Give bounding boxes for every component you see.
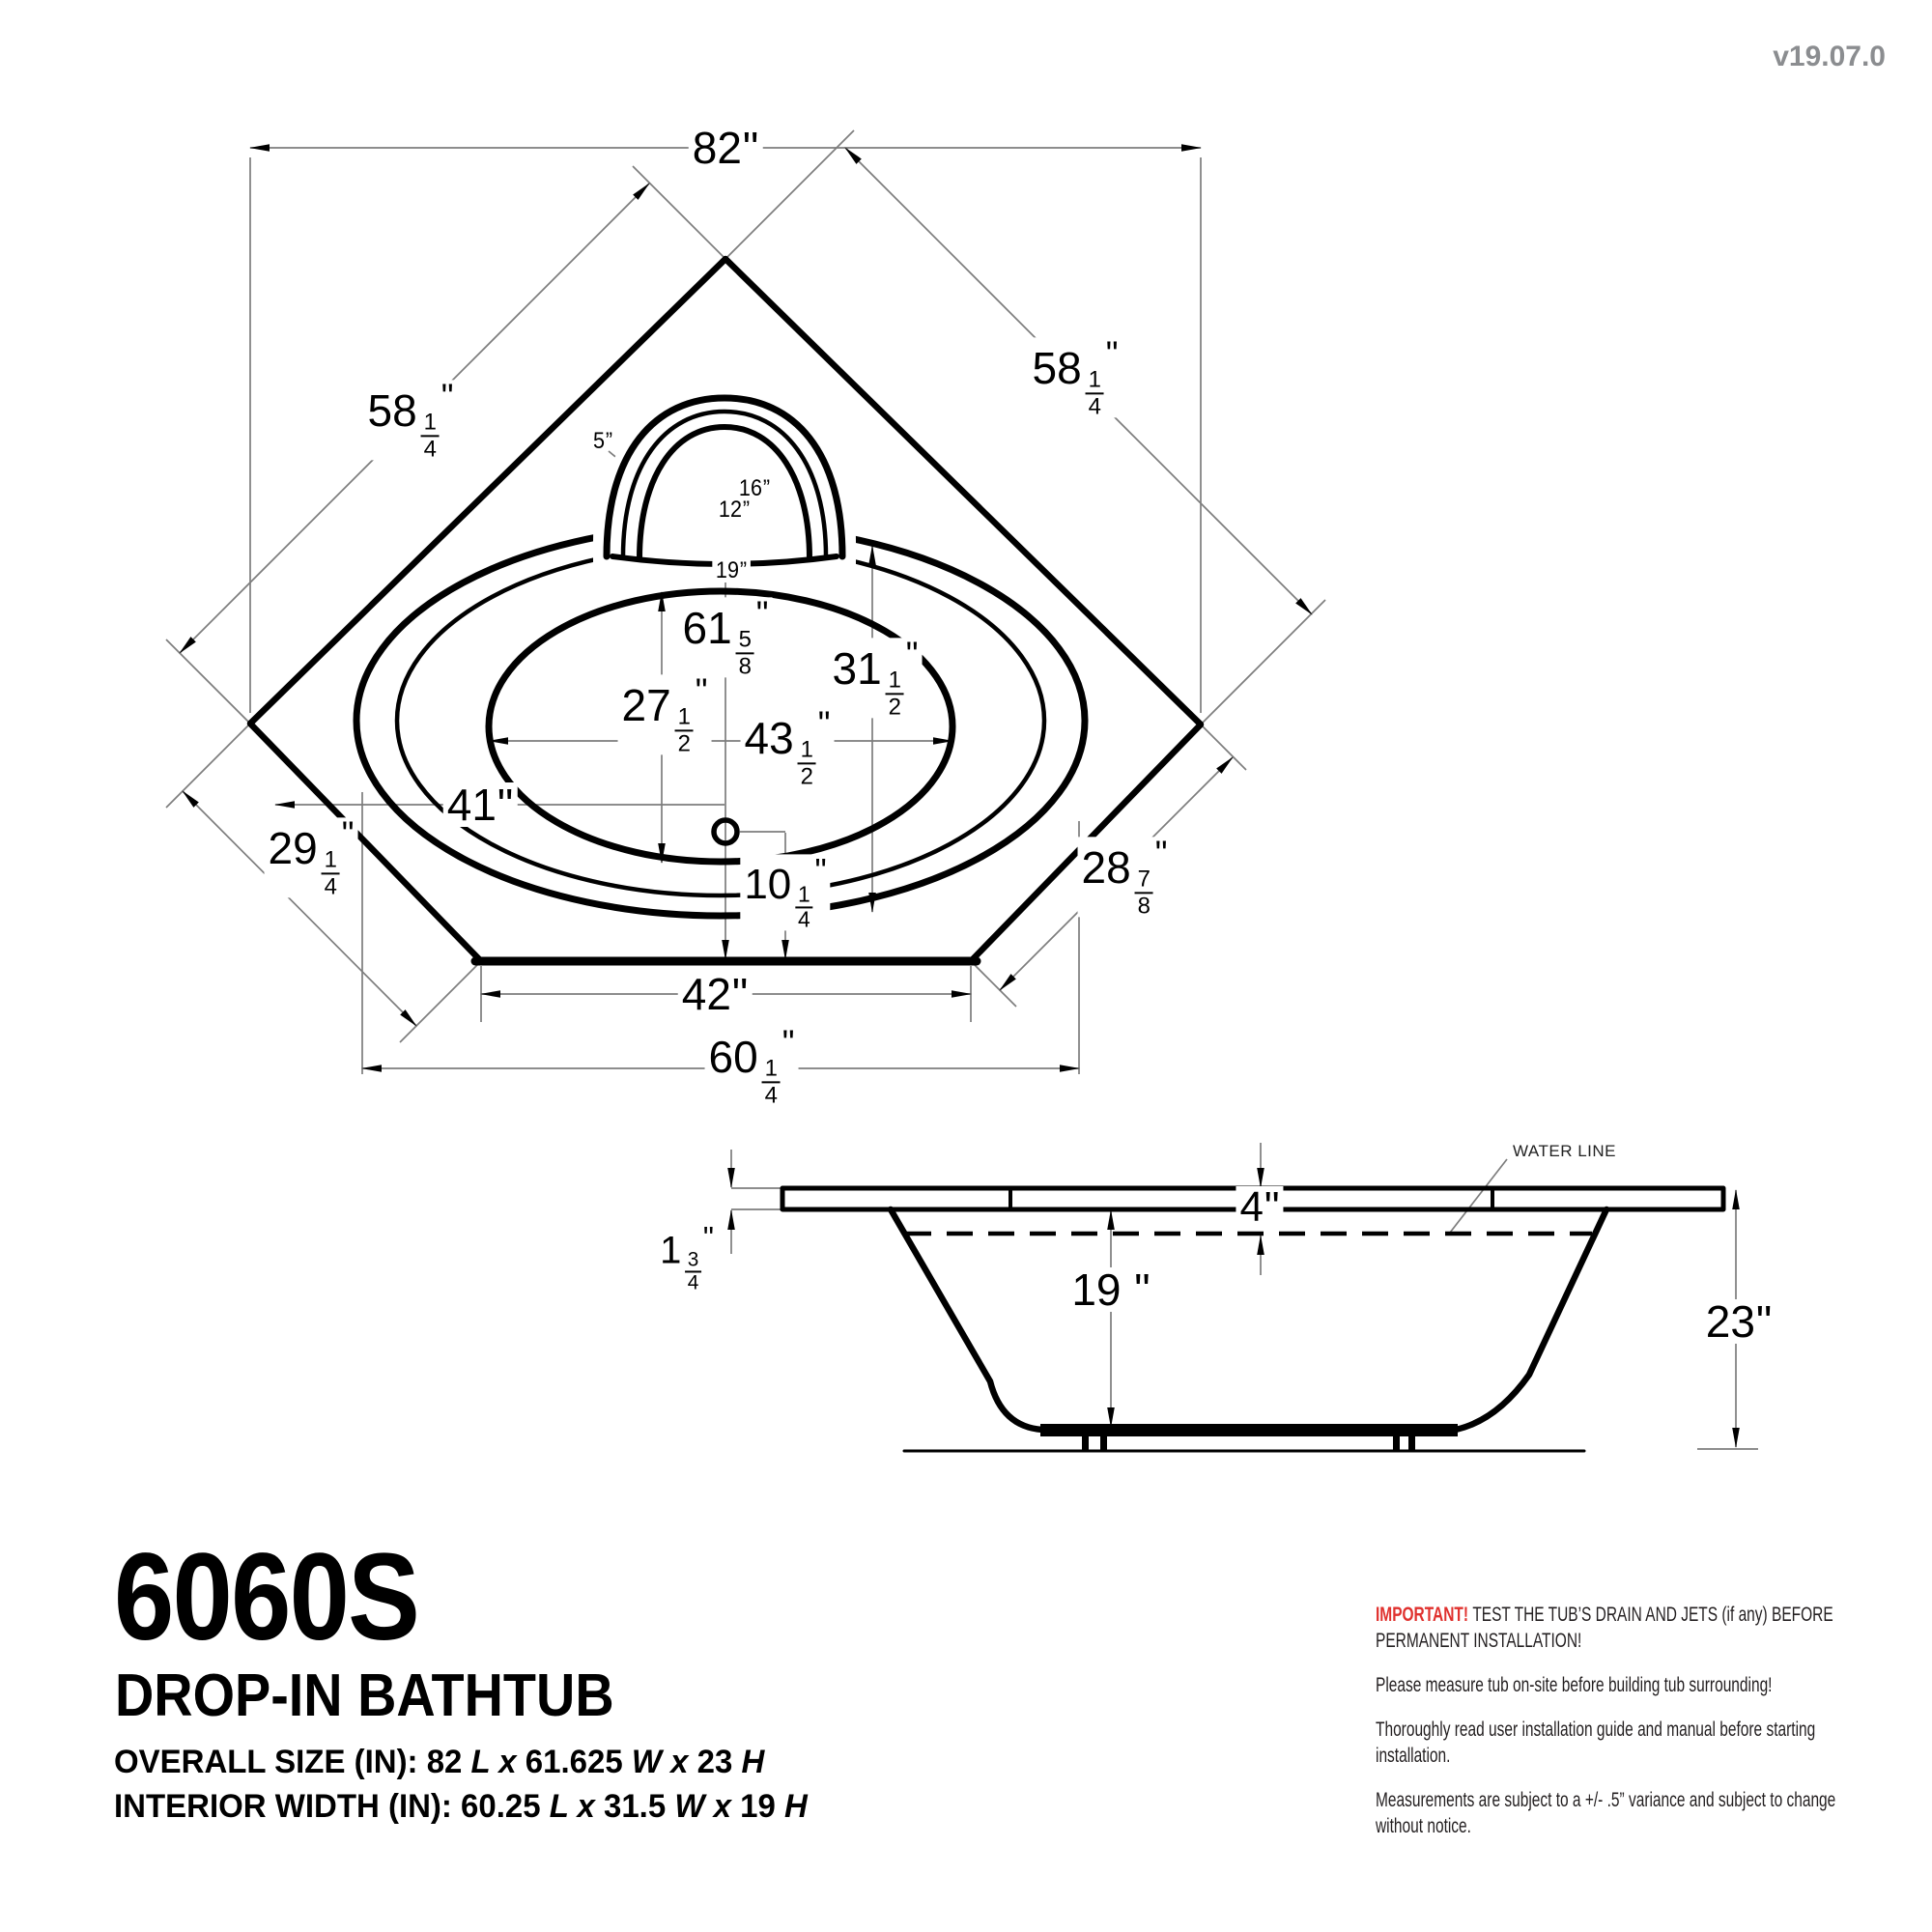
bowl-bottom (1040, 1424, 1458, 1436)
dimension-label-rim-thickness: 134" (660, 1222, 714, 1293)
dimension-label-deck-19: 19” (712, 559, 750, 582)
bowl-right-wall (1456, 1209, 1606, 1430)
water-line-leader (1450, 1159, 1507, 1233)
dimension-label-basin-length: 4312" (741, 707, 835, 787)
dimension-label-deck-width-5: 5” (593, 430, 612, 453)
bowl-left-wall (891, 1209, 1042, 1430)
dimension-label-deck-12: 12” (715, 498, 753, 522)
dimension-label-basin-depth-left: 2712" (618, 674, 712, 754)
dimension-label-overall-diagonal-width: 82" (689, 126, 763, 170)
dimension-label-front-edge-width: 42" (678, 972, 753, 1016)
foot (1100, 1436, 1107, 1451)
spec-line-2: INTERIOR WIDTH (IN): 60.25 L x 31.5 W x … (114, 1789, 808, 1825)
dimension-label-drain-offset: 1014" (740, 854, 830, 930)
dimension-label-overall-height: 23" (1702, 1299, 1776, 1344)
spec-line-1: OVERALL SIZE (IN): 82 L x 61.625 W x 23 … (114, 1745, 764, 1780)
dimension-label-interior-depth: 19 " (1067, 1267, 1153, 1312)
dimension-label-edge-upper-left: 5814" (364, 380, 458, 460)
note-3: Thoroughly read user installation guide … (1376, 1717, 1871, 1769)
note-1: IMPORTANT! TEST THE TUB’S DRAIN AND JETS… (1376, 1602, 1871, 1654)
note-2: Please measure tub on-site before buildi… (1376, 1672, 1871, 1698)
foot (1408, 1436, 1415, 1451)
note-4: Measurements are subject to a +/- .5” va… (1376, 1787, 1871, 1839)
foot (1393, 1436, 1400, 1451)
dimension-label-edge-upper-right: 5814" (1029, 337, 1122, 417)
dimension-label-interior-length: 6014" (705, 1026, 799, 1106)
dimension-label-edge-lower-left: 2914" (265, 817, 358, 897)
dimension-label-basin-width-right: 3112" (829, 638, 923, 718)
dimension-label-water-depth: 4" (1236, 1186, 1283, 1229)
dimension-label-edge-lower-right: 2878" (1078, 837, 1172, 917)
spec-sheet: 82"5814"5814"2914"2878"6158"2712"3112"43… (0, 0, 1932, 1932)
product-type: DROP-IN BATHTUB (115, 1666, 614, 1726)
version-label: v19.07.0 (1773, 41, 1886, 73)
outer-rim (356, 526, 1085, 916)
model-number: 6060S (114, 1536, 418, 1660)
dimension-label-centerline-length: 6158" (679, 597, 773, 677)
installation-notes: IMPORTANT! TEST THE TUB’S DRAIN AND JETS… (1376, 1602, 1871, 1858)
foot (1082, 1436, 1089, 1451)
dimension-label-width-41: 41" (443, 782, 518, 827)
water-line-label: WATER LINE (1513, 1142, 1616, 1161)
